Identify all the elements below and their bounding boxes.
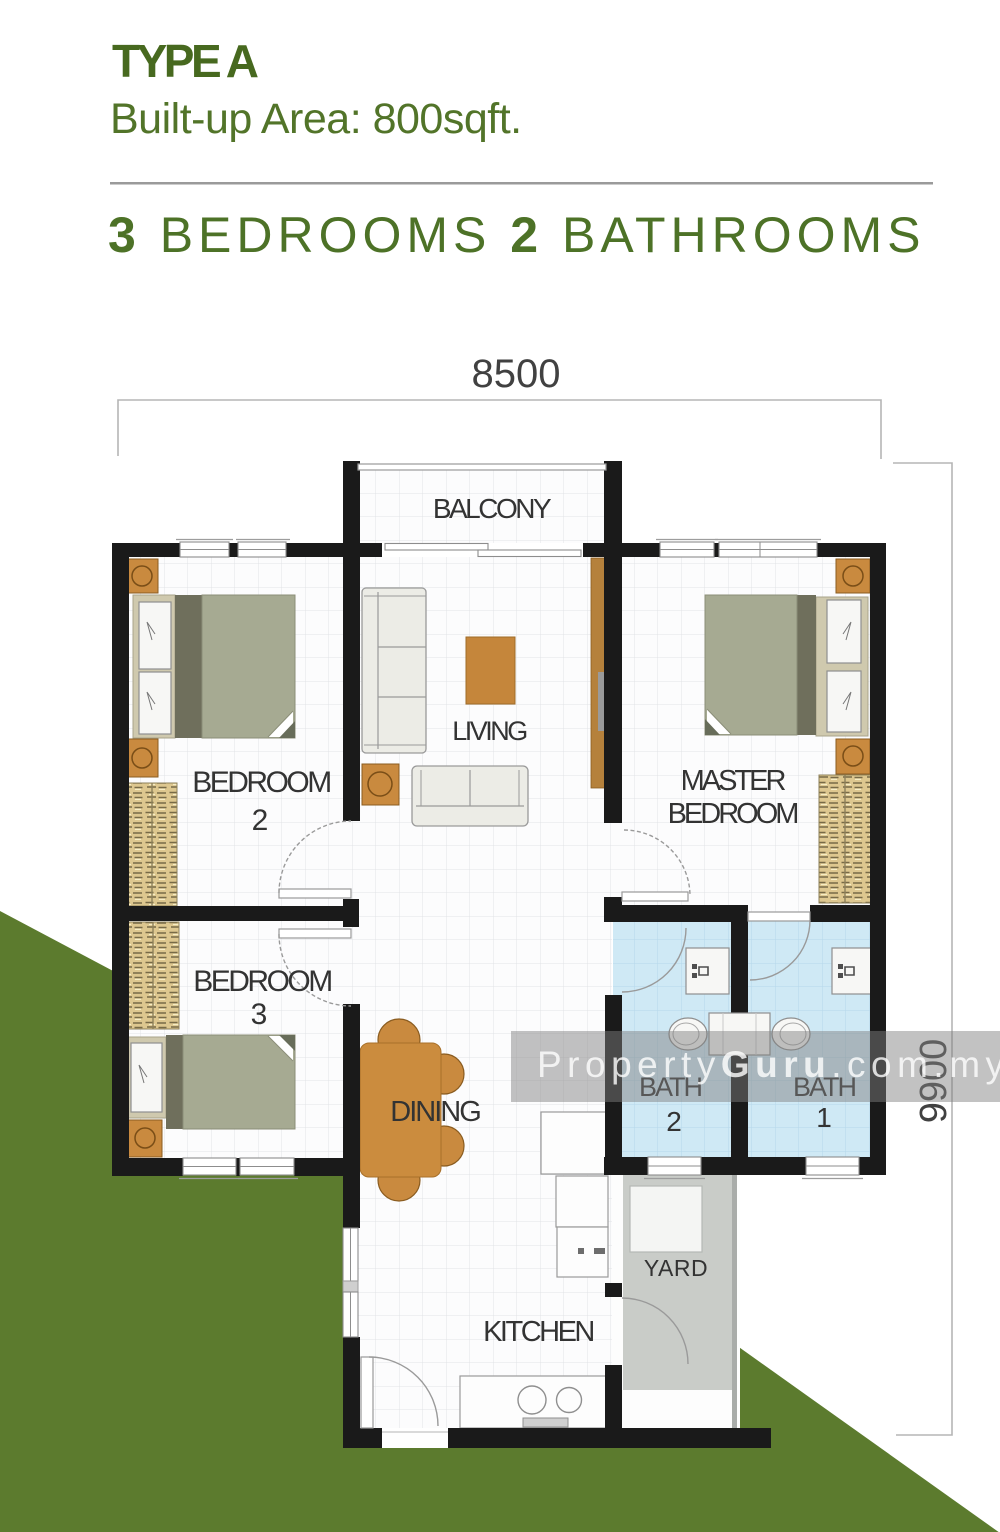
svg-text:MASTER: MASTER — [681, 765, 786, 797]
svg-text:8500: 8500 — [472, 352, 561, 396]
svg-text:2: 2 — [666, 1106, 682, 1137]
svg-text:BALCONY: BALCONY — [433, 493, 552, 524]
svg-text:3: 3 — [251, 998, 268, 1031]
svg-text:LIVING: LIVING — [452, 716, 526, 746]
svg-text:1: 1 — [816, 1102, 832, 1133]
svg-text:3 BEDROOMS 2 BATHROOMS: 3 BEDROOMS 2 BATHROOMS — [108, 207, 926, 263]
svg-text:YARD: YARD — [644, 1255, 708, 1281]
svg-text:Built-up Area: 800sqft.: Built-up Area: 800sqft. — [110, 95, 522, 143]
svg-text:BEDROOM: BEDROOM — [192, 766, 330, 799]
svg-text:DINING: DINING — [390, 1096, 480, 1128]
svg-text:BEDROOM: BEDROOM — [193, 965, 331, 998]
svg-text:KITCHEN: KITCHEN — [483, 1316, 593, 1348]
svg-text:TYPE A: TYPE A — [112, 35, 258, 87]
svg-text:BEDROOM: BEDROOM — [668, 798, 798, 830]
svg-text:2: 2 — [252, 804, 269, 837]
svg-text:PropertyGuru.com.my: PropertyGuru.com.my — [537, 1044, 1000, 1085]
